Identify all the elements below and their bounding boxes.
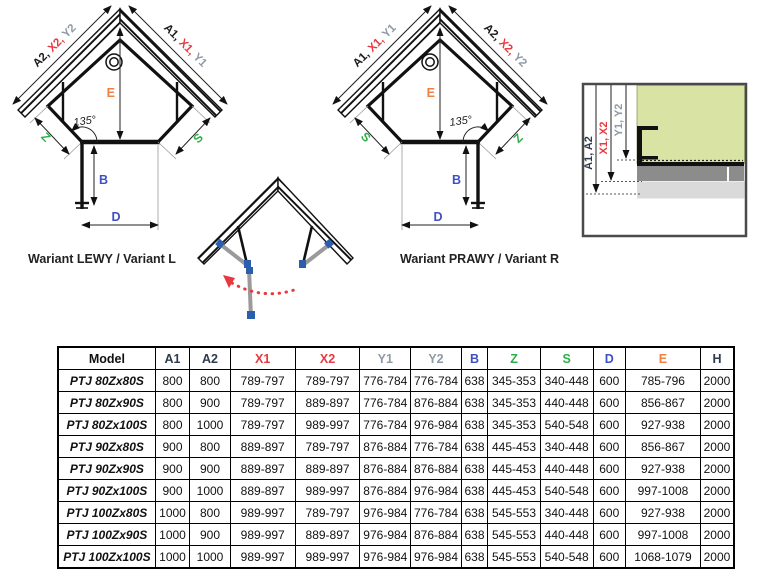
tray-edge-block <box>729 167 744 181</box>
table-row: PTJ 90Zx80S900800889-897789-797876-88477… <box>58 436 734 458</box>
e-label: E <box>107 86 115 100</box>
value-cell: 776-784 <box>360 392 411 414</box>
value-cell: 800 <box>190 436 231 458</box>
value-cell: 340-448 <box>540 436 593 458</box>
a-dimension-label: A1, A2 <box>583 136 595 170</box>
header-x1: X1 <box>230 347 295 370</box>
value-cell: 900 <box>155 436 189 458</box>
value-cell: 900 <box>190 392 231 414</box>
s-label: S <box>190 130 206 146</box>
value-cell: 445-453 <box>488 480 541 502</box>
variant-l-caption: Wariant LEWY / Variant L <box>28 252 176 266</box>
value-cell: 1000 <box>155 502 189 524</box>
model-cell: PTJ 90Zx100S <box>58 480 155 502</box>
model-cell: PTJ 100Zx90S <box>58 524 155 546</box>
value-cell: 989-997 <box>230 546 295 569</box>
header-z: Z <box>488 347 541 370</box>
value-cell: 989-997 <box>295 414 360 436</box>
drain-icon <box>422 54 438 70</box>
dimension-table: Model A1 A2 X1 X2 Y1 Y2 B Z S D E H PTJ … <box>57 346 735 569</box>
header-s: S <box>540 347 593 370</box>
y-dimension-label: Y1, Y2 <box>613 104 625 137</box>
value-cell: 900 <box>190 524 231 546</box>
table-row: PTJ 100Zx80S1000800989-997789-797976-984… <box>58 502 734 524</box>
value-cell: 600 <box>593 458 625 480</box>
model-cell: PTJ 80Zx80S <box>58 370 155 392</box>
value-cell: 540-548 <box>540 480 593 502</box>
value-cell: 889-897 <box>295 392 360 414</box>
value-cell: 889-897 <box>295 458 360 480</box>
model-cell: PTJ 100Zx100S <box>58 546 155 569</box>
value-cell: 876-884 <box>360 458 411 480</box>
table-row: PTJ 90Zx100S9001000889-897989-997876-884… <box>58 480 734 502</box>
value-cell: 800 <box>190 370 231 392</box>
table-row: PTJ 90Zx90S900900889-897889-897876-88487… <box>58 458 734 480</box>
value-cell: 856-867 <box>625 436 700 458</box>
value-cell: 900 <box>190 458 231 480</box>
value-cell: 638 <box>461 546 487 569</box>
value-cell: 600 <box>593 370 625 392</box>
value-cell: 789-797 <box>230 392 295 414</box>
header-d: D <box>593 347 625 370</box>
value-cell: 889-897 <box>230 480 295 502</box>
value-cell: 989-997 <box>230 502 295 524</box>
left-pivot-hinge-icon <box>244 260 251 268</box>
wall-section <box>637 86 745 164</box>
value-cell: 989-997 <box>230 524 295 546</box>
value-cell: 789-797 <box>295 370 360 392</box>
value-cell: 876-884 <box>360 480 411 502</box>
value-cell: 2000 <box>700 480 734 502</box>
door-handle-icon <box>247 311 255 319</box>
value-cell: 900 <box>155 458 189 480</box>
value-cell: 2000 <box>700 370 734 392</box>
table-row: PTJ 80Zx80S800800789-797789-797776-78477… <box>58 370 734 392</box>
swing-arc <box>232 283 294 294</box>
value-cell: 440-448 <box>540 458 593 480</box>
value-cell: 600 <box>593 546 625 569</box>
value-cell: 2000 <box>700 392 734 414</box>
value-cell: 997-1008 <box>625 524 700 546</box>
e-label: E <box>427 86 435 100</box>
value-cell: 638 <box>461 436 487 458</box>
swing-arrowhead-icon <box>223 275 235 288</box>
value-cell: 2000 <box>700 546 734 569</box>
value-cell: 889-897 <box>295 524 360 546</box>
value-cell: 997-1008 <box>625 480 700 502</box>
value-cell: 776-784 <box>411 436 462 458</box>
value-cell: 1000 <box>155 546 189 569</box>
value-cell: 638 <box>461 480 487 502</box>
model-cell: PTJ 100Zx80S <box>58 502 155 524</box>
value-cell: 927-938 <box>625 414 700 436</box>
value-cell: 976-984 <box>411 480 462 502</box>
value-cell: 976-984 <box>360 546 411 569</box>
table-row: PTJ 80Zx90S800900789-797889-897776-78487… <box>58 392 734 414</box>
d-label: D <box>433 210 442 224</box>
value-cell: 976-984 <box>360 502 411 524</box>
s-label: S <box>358 129 374 145</box>
value-cell: 789-797 <box>295 502 360 524</box>
right-pivot-hinge-icon <box>299 260 306 268</box>
table-header-row: Model A1 A2 X1 X2 Y1 Y2 B Z S D E H <box>58 347 734 370</box>
technical-sheet: A2, X2, Y2 A1, X1, Y1 E 135° Z S <box>0 0 782 586</box>
value-cell: 889-897 <box>230 436 295 458</box>
model-cell: PTJ 90Zx80S <box>58 436 155 458</box>
value-cell: 600 <box>593 524 625 546</box>
model-cell: PTJ 80Zx100S <box>58 414 155 436</box>
value-cell: 545-553 <box>488 546 541 569</box>
value-cell: 856-867 <box>625 392 700 414</box>
value-cell: 976-984 <box>360 524 411 546</box>
d-label: D <box>111 210 120 224</box>
value-cell: 876-884 <box>411 524 462 546</box>
value-cell: 789-797 <box>230 370 295 392</box>
value-cell: 545-553 <box>488 502 541 524</box>
value-cell: 345-353 <box>488 370 541 392</box>
value-cell: 2000 <box>700 524 734 546</box>
z-label: Z <box>38 130 53 145</box>
value-cell: 1000 <box>190 414 231 436</box>
header-e: E <box>625 347 700 370</box>
value-cell: 876-884 <box>411 458 462 480</box>
value-cell: 545-553 <box>488 524 541 546</box>
value-cell: 2000 <box>700 436 734 458</box>
value-cell: 776-784 <box>411 502 462 524</box>
angle-label: 135° <box>449 114 474 129</box>
tray-rim <box>637 162 744 167</box>
value-cell: 638 <box>461 458 487 480</box>
value-cell: 638 <box>461 502 487 524</box>
installation-detail-diagram: A1, A2 X1, X2 Y1, Y2 <box>580 80 772 242</box>
value-cell: 1000 <box>190 480 231 502</box>
variant-r-diagram: A1, X1, Y1 A2, X2, Y2 E 135° S Z B <box>330 4 555 252</box>
value-cell: 440-448 <box>540 524 593 546</box>
b-label: B <box>99 173 108 187</box>
header-a2: A2 <box>190 347 231 370</box>
value-cell: 889-897 <box>230 458 295 480</box>
value-cell: 600 <box>593 392 625 414</box>
value-cell: 800 <box>155 414 189 436</box>
door-top-hinge-icon <box>246 267 253 274</box>
table-row: PTJ 80Zx100S8001000789-797989-997776-784… <box>58 414 734 436</box>
value-cell: 1068-1079 <box>625 546 700 569</box>
header-a1: A1 <box>155 347 189 370</box>
header-model: Model <box>58 347 155 370</box>
value-cell: 927-938 <box>625 502 700 524</box>
value-cell: 345-353 <box>488 392 541 414</box>
value-cell: 776-784 <box>360 370 411 392</box>
value-cell: 800 <box>155 370 189 392</box>
value-cell: 876-884 <box>411 392 462 414</box>
table-body: PTJ 80Zx80S800800789-797789-797776-78477… <box>58 370 734 569</box>
z-label: Z <box>511 131 526 146</box>
header-y2: Y2 <box>411 347 462 370</box>
value-cell: 638 <box>461 370 487 392</box>
value-cell: 345-353 <box>488 414 541 436</box>
value-cell: 976-984 <box>411 546 462 569</box>
model-cell: PTJ 90Zx90S <box>58 458 155 480</box>
value-cell: 800 <box>155 392 189 414</box>
value-cell: 440-448 <box>540 392 593 414</box>
value-cell: 989-997 <box>295 480 360 502</box>
value-cell: 2000 <box>700 414 734 436</box>
value-cell: 776-784 <box>411 370 462 392</box>
header-y1: Y1 <box>360 347 411 370</box>
header-b: B <box>461 347 487 370</box>
x-dimension-label: X1, X2 <box>598 121 610 154</box>
value-cell: 638 <box>461 524 487 546</box>
value-cell: 445-453 <box>488 458 541 480</box>
value-cell: 1000 <box>190 546 231 569</box>
value-cell: 876-884 <box>360 436 411 458</box>
value-cell: 776-784 <box>360 414 411 436</box>
value-cell: 785-796 <box>625 370 700 392</box>
value-cell: 600 <box>593 414 625 436</box>
value-cell: 340-448 <box>540 502 593 524</box>
value-cell: 600 <box>593 502 625 524</box>
variant-r-caption: Wariant PRAWY / Variant R <box>400 252 559 266</box>
value-cell: 340-448 <box>540 370 593 392</box>
value-cell: 638 <box>461 392 487 414</box>
value-cell: 900 <box>155 480 189 502</box>
value-cell: 789-797 <box>295 436 360 458</box>
value-cell: 638 <box>461 414 487 436</box>
value-cell: 600 <box>593 480 625 502</box>
value-cell: 789-797 <box>230 414 295 436</box>
angle-label: 135° <box>73 114 98 129</box>
value-cell: 927-938 <box>625 458 700 480</box>
value-cell: 445-453 <box>488 436 541 458</box>
floor-base <box>637 182 745 199</box>
value-cell: 540-548 <box>540 414 593 436</box>
header-h: H <box>700 347 734 370</box>
value-cell: 2000 <box>700 458 734 480</box>
shower-tray <box>637 167 727 181</box>
model-cell: PTJ 80Zx90S <box>58 392 155 414</box>
value-cell: 600 <box>593 436 625 458</box>
table-row: PTJ 100Zx90S1000900989-997889-897976-984… <box>58 524 734 546</box>
value-cell: 540-548 <box>540 546 593 569</box>
header-x2: X2 <box>295 347 360 370</box>
b-label: B <box>452 173 461 187</box>
value-cell: 1000 <box>155 524 189 546</box>
value-cell: 800 <box>190 502 231 524</box>
table-row: PTJ 100Zx100S10001000989-997989-997976-9… <box>58 546 734 569</box>
open-door-panel <box>249 268 251 318</box>
value-cell: 2000 <box>700 502 734 524</box>
value-cell: 976-984 <box>411 414 462 436</box>
value-cell: 989-997 <box>295 546 360 569</box>
